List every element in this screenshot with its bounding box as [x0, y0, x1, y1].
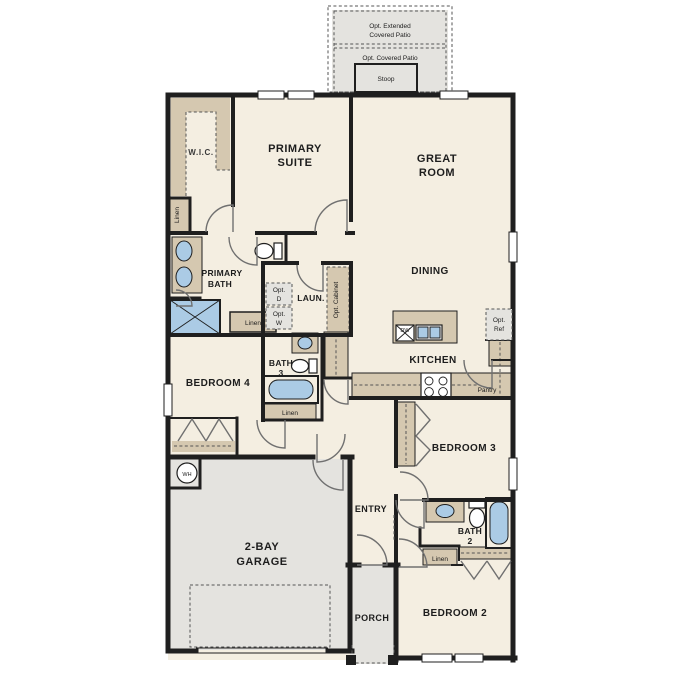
opt-ref-label-2: Ref: [494, 326, 504, 333]
garage-label-1: 2-BAY: [245, 541, 280, 553]
bedroom2-label: BEDROOM 2: [423, 608, 487, 619]
kitchen-label: KITCHEN: [409, 355, 456, 366]
stoop-label: Stoop: [378, 76, 395, 83]
window-primary-suite-1: [258, 91, 284, 99]
floor-plan-page: Opt. Extended Covered Patio Opt. Covered…: [0, 0, 687, 687]
opt-extended-patio-label-2: Covered Patio: [369, 32, 411, 39]
water-heater-label: WH: [182, 472, 191, 478]
island-sink-bowl-1: [418, 327, 428, 338]
linen-bath2-label: Linen: [432, 556, 448, 563]
dishwasher-label: DW: [400, 328, 410, 334]
window-bedroom3: [509, 458, 517, 490]
bath3-toilet-bowl: [292, 360, 309, 373]
wic-label: W.I.C.: [188, 148, 213, 157]
dining-label: DINING: [411, 266, 448, 277]
range: [421, 373, 451, 398]
primary-shower: [170, 300, 220, 334]
porch-post-right: [388, 655, 398, 665]
bath2-toilet-tank: [469, 501, 485, 508]
window-bedroom2-2: [455, 654, 483, 662]
toilet-tank: [274, 243, 282, 259]
linen-bath3-label: Linen: [282, 410, 298, 417]
bath3-label-1: BATH: [269, 358, 293, 368]
opt-dryer-label-1: Opt.: [273, 287, 285, 294]
bath2-toilet-bowl: [470, 509, 485, 528]
window-dining: [509, 232, 517, 262]
bath2-label-2: 2: [467, 536, 472, 546]
bath2-label-1: BATH: [458, 526, 482, 536]
floor-plan-svg: Opt. Extended Covered Patio Opt. Covered…: [0, 0, 687, 687]
entry-closet: [324, 332, 348, 378]
garage-label-2: GARAGE: [236, 556, 287, 568]
opt-ref-label-1: Opt.: [493, 317, 505, 324]
bath3-toilet-tank: [309, 359, 317, 373]
bath3-tub-basin: [269, 380, 313, 399]
opt-washer-label-2: W: [276, 320, 283, 327]
pantry-label: Pantry: [478, 387, 498, 394]
porch-label: PORCH: [355, 613, 390, 623]
linen-primary-label: Linen: [174, 207, 181, 223]
opt-cabinet-label: Opt. Cabinet: [333, 282, 340, 319]
primary-bath-label-2: BATH: [208, 279, 232, 289]
window-bedroom2-1: [422, 654, 452, 662]
bedroom3-label: BEDROOM 3: [432, 443, 496, 454]
linen-bath-label: Linen: [245, 320, 261, 327]
primary-suite-label-1: PRIMARY: [268, 143, 322, 155]
window-bedroom4: [164, 384, 172, 416]
wic-shelf-left: [171, 98, 186, 196]
porch-post-left: [346, 655, 356, 665]
opt-washer-label-1: Opt.: [273, 311, 285, 318]
great-room-label-2: ROOM: [419, 167, 455, 179]
opt-ref-box: [486, 309, 512, 340]
bath3-sink: [298, 337, 312, 349]
great-room-label-1: GREAT: [417, 153, 457, 165]
opt-dryer-label-2: D: [277, 296, 282, 303]
entry-label: ENTRY: [355, 504, 387, 514]
island-sink-bowl-2: [430, 327, 440, 338]
window-great-room: [440, 91, 468, 99]
opt-extended-patio-label-1: Opt. Extended: [369, 23, 411, 30]
window-primary-suite-2: [288, 91, 314, 99]
bath3-label-2: 3: [278, 368, 283, 378]
bath3-toilet: [292, 359, 318, 373]
primary-sink-2: [176, 267, 192, 287]
primary-suite-label-2: SUITE: [278, 157, 313, 169]
bath2-toilet: [469, 501, 485, 528]
bath2-sink: [436, 505, 454, 518]
bath2-tub: [486, 498, 512, 548]
bedroom4-label: BEDROOM 4: [186, 378, 250, 389]
bath2-tub-basin: [490, 502, 508, 544]
primary-sink-1: [176, 241, 192, 261]
bath3-tub: [264, 376, 318, 403]
laundry-label: LAUN.: [297, 293, 324, 303]
primary-bath-label-1: PRIMARY: [202, 268, 243, 278]
wic-shelf-right: [216, 98, 230, 170]
opt-covered-patio-label: Opt. Covered Patio: [362, 55, 418, 62]
primary-toilet: [255, 243, 282, 259]
